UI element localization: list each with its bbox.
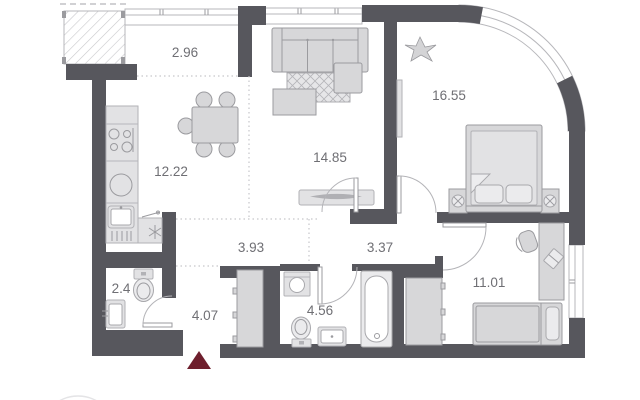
wall-curve-segment-b <box>557 76 585 131</box>
kitchen-faucet <box>142 211 160 217</box>
living-room-window <box>265 8 362 24</box>
room-area-bathroom: 4.56 <box>307 303 333 318</box>
hall-wardrobe <box>233 270 263 347</box>
wall-bathroom-top-right <box>352 264 392 271</box>
coffee-table <box>273 89 316 115</box>
bathroom-door <box>318 267 357 304</box>
washing-machine <box>284 272 310 296</box>
watermark-circle <box>40 396 116 400</box>
tv-stand <box>299 190 374 205</box>
corner-curved-window <box>459 5 585 131</box>
dining-chair <box>219 92 235 108</box>
dining-set <box>178 92 238 157</box>
wall-living-bedroom-divider <box>384 22 397 213</box>
floor-plan: 2.96 12.22 14.85 16.55 3.93 3.37 2.4 4.0… <box>0 0 640 400</box>
nightstand-right <box>541 189 559 213</box>
wall-kids-wardrobe-cap <box>403 264 443 278</box>
wall-entry-block <box>92 330 183 356</box>
room-area-kids: 11.01 <box>473 275 506 290</box>
bathroom-toilet <box>292 317 312 347</box>
balcony-window <box>125 9 244 25</box>
wall-curve-segment-a <box>459 5 483 24</box>
pillow <box>475 185 503 203</box>
wall-left-exterior <box>92 64 106 356</box>
pillow <box>506 185 532 203</box>
wall-bathroom-top-left <box>280 264 320 271</box>
dining-chair <box>196 92 212 108</box>
balcony-hatched-area <box>62 11 125 64</box>
double-bed <box>466 125 542 212</box>
floor-plan-canvas: 2.96 12.22 14.85 16.55 3.93 3.37 2.4 4.0… <box>0 0 640 400</box>
room-area-kitchen: 12.22 <box>154 164 188 179</box>
entrance-arrow-icon <box>187 351 211 369</box>
wall-balcony-right <box>238 20 252 77</box>
wall-top-bedroom <box>362 5 461 22</box>
wall-right-exterior-top <box>569 131 585 245</box>
room-area-wc: 2.4 <box>112 281 131 296</box>
desk-chair <box>513 229 539 256</box>
bedroom-door <box>397 176 436 213</box>
wall-kids-room-north <box>437 212 569 223</box>
kids-room-door <box>443 223 486 270</box>
kids-wardrobe <box>406 278 445 345</box>
room-area-entry: 4.07 <box>192 308 218 323</box>
bathtub <box>361 271 392 347</box>
room-area-living: 14.85 <box>313 150 347 165</box>
nightstand-left <box>449 189 467 213</box>
wall-bathroom-right <box>392 264 404 358</box>
room-area-bedroom: 16.55 <box>432 88 466 103</box>
sofa-chaise <box>334 63 362 93</box>
wall-bottom-exterior <box>220 344 585 358</box>
wall-wc-top <box>92 252 176 268</box>
bedroom-mirror <box>397 80 402 137</box>
room-area-corridor: 3.37 <box>367 240 393 255</box>
dining-table <box>192 107 238 143</box>
wall-kids-doorpost <box>435 256 443 266</box>
plant-decor <box>405 37 436 61</box>
bathroom-basin <box>318 327 346 346</box>
pillow <box>546 307 559 340</box>
single-bed <box>473 303 562 345</box>
wc-toilet <box>134 269 154 302</box>
room-area-hallway: 3.93 <box>238 240 264 255</box>
wall-right-exterior-bottom <box>569 318 585 358</box>
kids-room-window <box>569 245 583 318</box>
room-area-balcony: 2.96 <box>172 45 198 60</box>
